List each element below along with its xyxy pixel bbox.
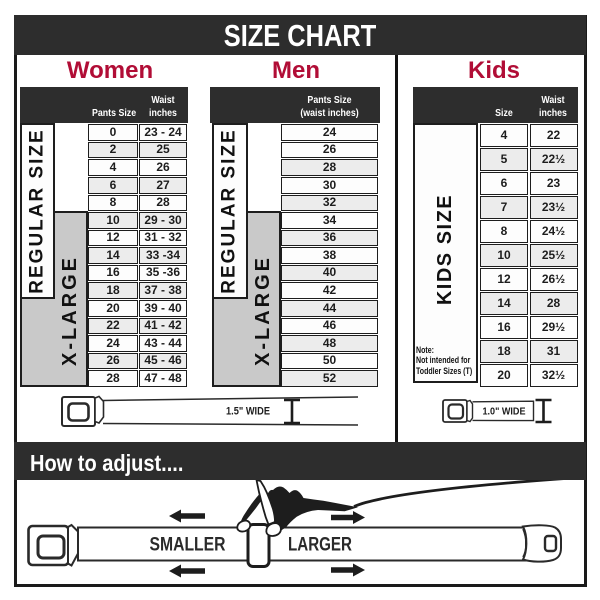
svg-text:1.0" WIDE: 1.0" WIDE bbox=[483, 406, 526, 418]
svg-text:1.5" WIDE: 1.5" WIDE bbox=[226, 406, 270, 418]
svg-text:SMALLER: SMALLER bbox=[150, 535, 226, 556]
svg-text:LARGER: LARGER bbox=[288, 535, 352, 556]
